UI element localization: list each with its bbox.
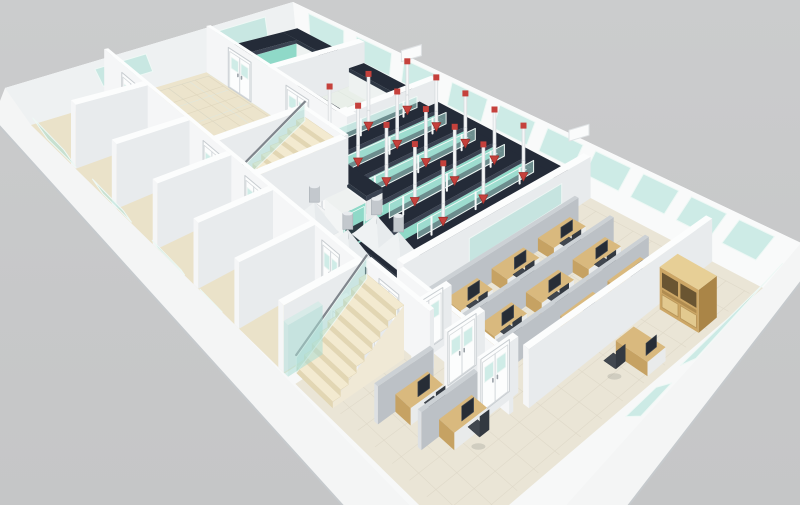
lab-floorplan-3d-render [0, 0, 800, 505]
extractor-coupling [404, 58, 410, 64]
right-room-wall-side-b [523, 345, 529, 409]
screenshot-root [0, 0, 800, 505]
hood-duct-cylinder [371, 199, 381, 215]
chair-shadow [607, 373, 621, 379]
extractor-coupling [355, 103, 361, 109]
extractor-coupling [394, 89, 400, 95]
extractor-coupling [452, 124, 458, 130]
stair-glass-balustrade-side-b [284, 321, 288, 377]
strip-divider-2-side-b [112, 140, 117, 209]
hood-duct-top [309, 184, 319, 188]
extractor-coupling [423, 106, 429, 112]
hood-duct-cylinder [309, 186, 319, 202]
chair-shadow [471, 443, 485, 449]
rooftop-duct-box [569, 124, 589, 141]
extractor-coupling [384, 122, 390, 128]
hood-duct-top [343, 211, 353, 215]
strip-divider-1-side-b [71, 100, 76, 169]
hood-duct-top [371, 197, 381, 201]
strip-divider-3-side-b [153, 179, 158, 249]
cubicle-partition-5-side-b [418, 409, 422, 450]
extractor-coupling [521, 123, 527, 129]
extractor-coupling [366, 71, 372, 77]
extractor-coupling [440, 160, 446, 166]
extractor-coupling [433, 74, 439, 80]
stairwell-south-west-wall-side-b [278, 300, 284, 373]
extractor-coupling [412, 141, 418, 147]
strip-divider-5-side-b [234, 258, 239, 329]
hood-duct-top [394, 214, 404, 218]
extractor-coupling [492, 107, 498, 113]
extractor-coupling [462, 90, 468, 96]
extractor-coupling [480, 141, 486, 147]
strip-divider-4-side-b [194, 218, 199, 288]
hood-duct-cylinder [394, 216, 404, 232]
extractor-coupling [327, 84, 333, 90]
cubicle-partition-4-side-b [374, 383, 378, 424]
hood-duct-cylinder [343, 213, 353, 229]
